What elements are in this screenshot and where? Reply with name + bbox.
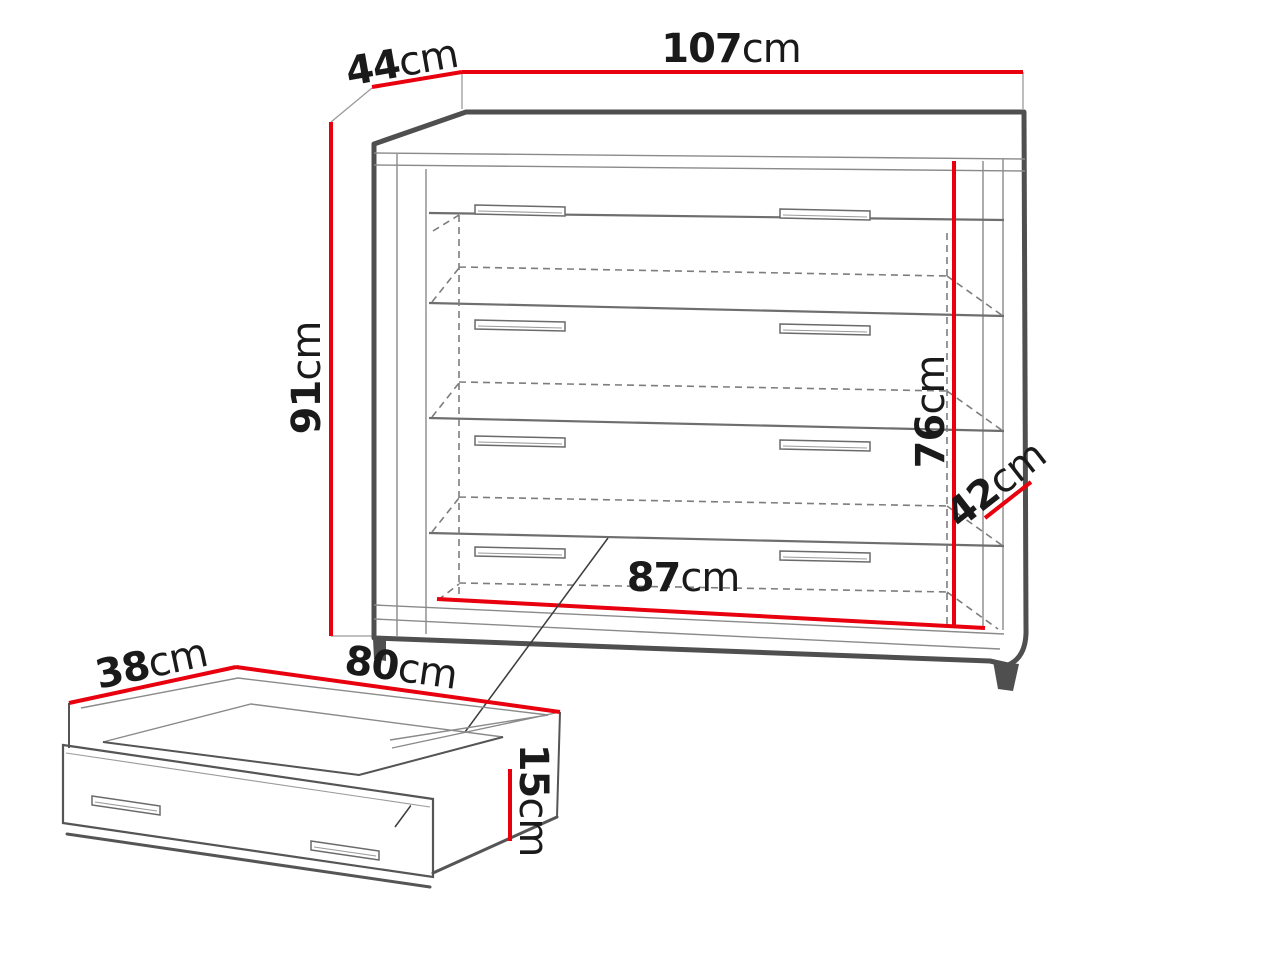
furniture-dimension-diagram: 107cm 44cm 91cm 76cm 42cm 87cm 38cm 80cm… <box>0 0 1280 960</box>
handle <box>475 547 565 558</box>
drawer-drawing <box>63 667 560 887</box>
chest-interior-height-label: 76cm <box>908 356 954 469</box>
diagram-page: 107cm 44cm 91cm 76cm 42cm 87cm 38cm 80cm… <box>0 0 1280 960</box>
extension-lines <box>331 72 1023 636</box>
chest-top-panel-edges <box>374 153 1025 171</box>
chest-width-label: 107cm <box>661 26 800 72</box>
chest-interior-width-label: 87cm <box>627 555 740 601</box>
chest-height-label: 91cm <box>284 322 330 435</box>
handle <box>475 436 565 447</box>
handle <box>780 551 870 562</box>
drawer-handle <box>311 841 379 860</box>
handle <box>780 440 870 451</box>
dimension-labels: 107cm 44cm 91cm 76cm 42cm 87cm 38cm 80cm… <box>91 26 1054 856</box>
drawer-width-label: 80cm <box>342 638 460 699</box>
handle <box>780 324 870 335</box>
drawer-base-edge <box>67 834 430 887</box>
drawer-depth-label: 38cm <box>91 630 211 698</box>
chest-interior-width-dimension-line <box>437 599 985 628</box>
handle <box>475 205 565 216</box>
drawer-height-label: 15cm <box>510 744 556 857</box>
drawer-handle <box>92 796 160 815</box>
chest-foot-right <box>993 661 1019 691</box>
handle <box>475 320 565 331</box>
chest-depth-label: 44cm <box>342 31 461 96</box>
handle <box>780 209 870 220</box>
